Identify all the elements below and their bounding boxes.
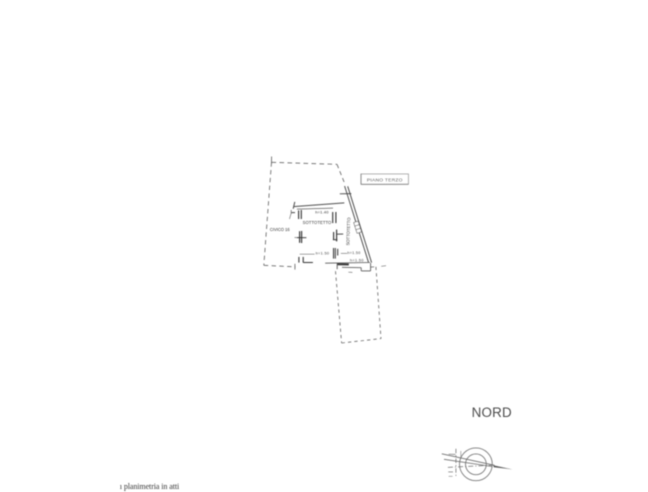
svg-text:SOTTOTETTO: SOTTOTETTO: [303, 220, 332, 225]
svg-text:NORD: NORD: [472, 405, 512, 420]
svg-text:SOTTOTETTO: SOTTOTETTO: [345, 217, 351, 246]
svg-text:CIVICO 16: CIVICO 16: [270, 227, 291, 232]
svg-text:ı planimetria in atti: ı planimetria in atti: [120, 482, 180, 491]
svg-text:PIANO TERZO: PIANO TERZO: [367, 177, 403, 183]
svg-text:h=1.50: h=1.50: [350, 258, 364, 262]
svg-text:h=1.40: h=1.40: [315, 210, 329, 215]
svg-text:h=1.50: h=1.50: [316, 251, 330, 255]
svg-text:h=1.50: h=1.50: [347, 251, 360, 255]
